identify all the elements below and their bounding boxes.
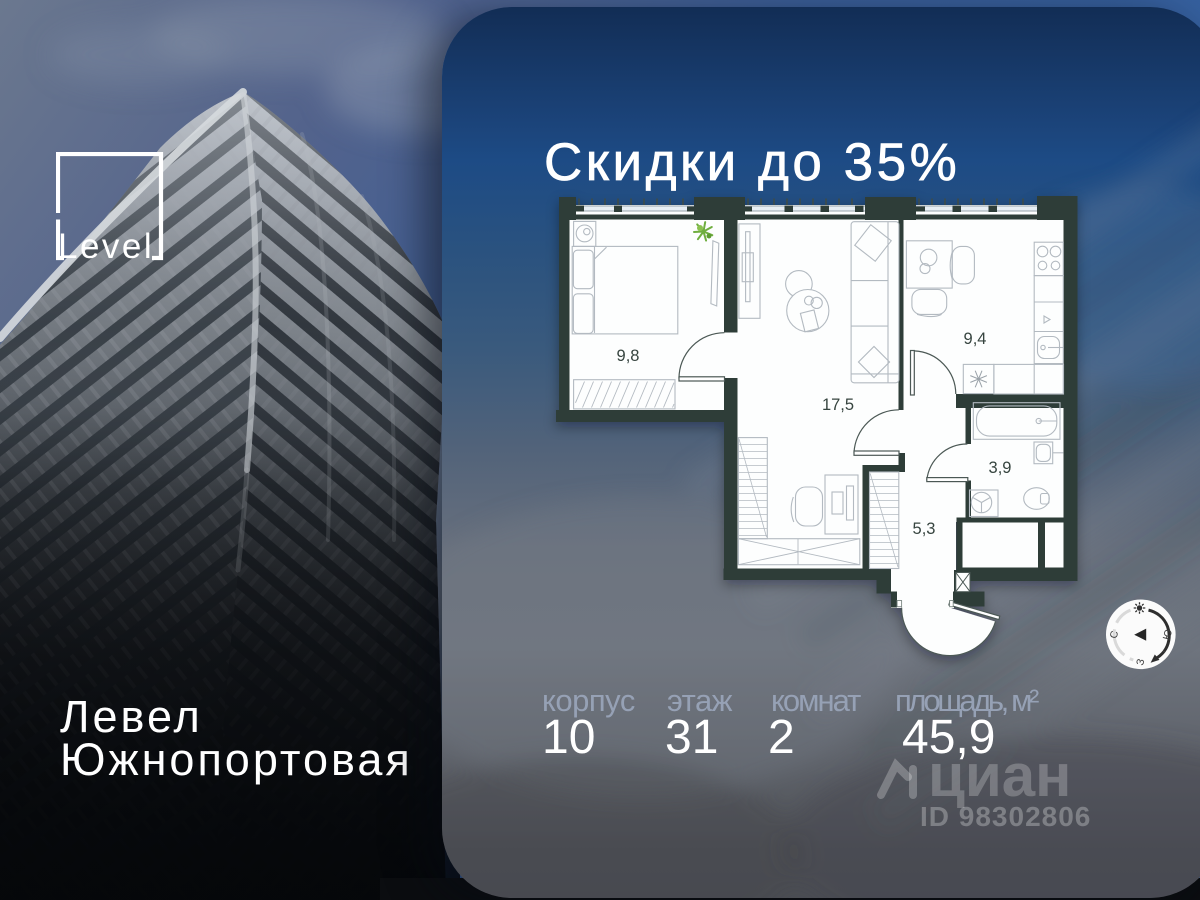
svg-text:5,3: 5,3 [913, 520, 936, 538]
svg-text:9,8: 9,8 [617, 347, 640, 365]
svg-text:17,5: 17,5 [822, 396, 854, 414]
svg-text:3,9: 3,9 [989, 459, 1012, 477]
svg-text:9,4: 9,4 [964, 330, 987, 348]
